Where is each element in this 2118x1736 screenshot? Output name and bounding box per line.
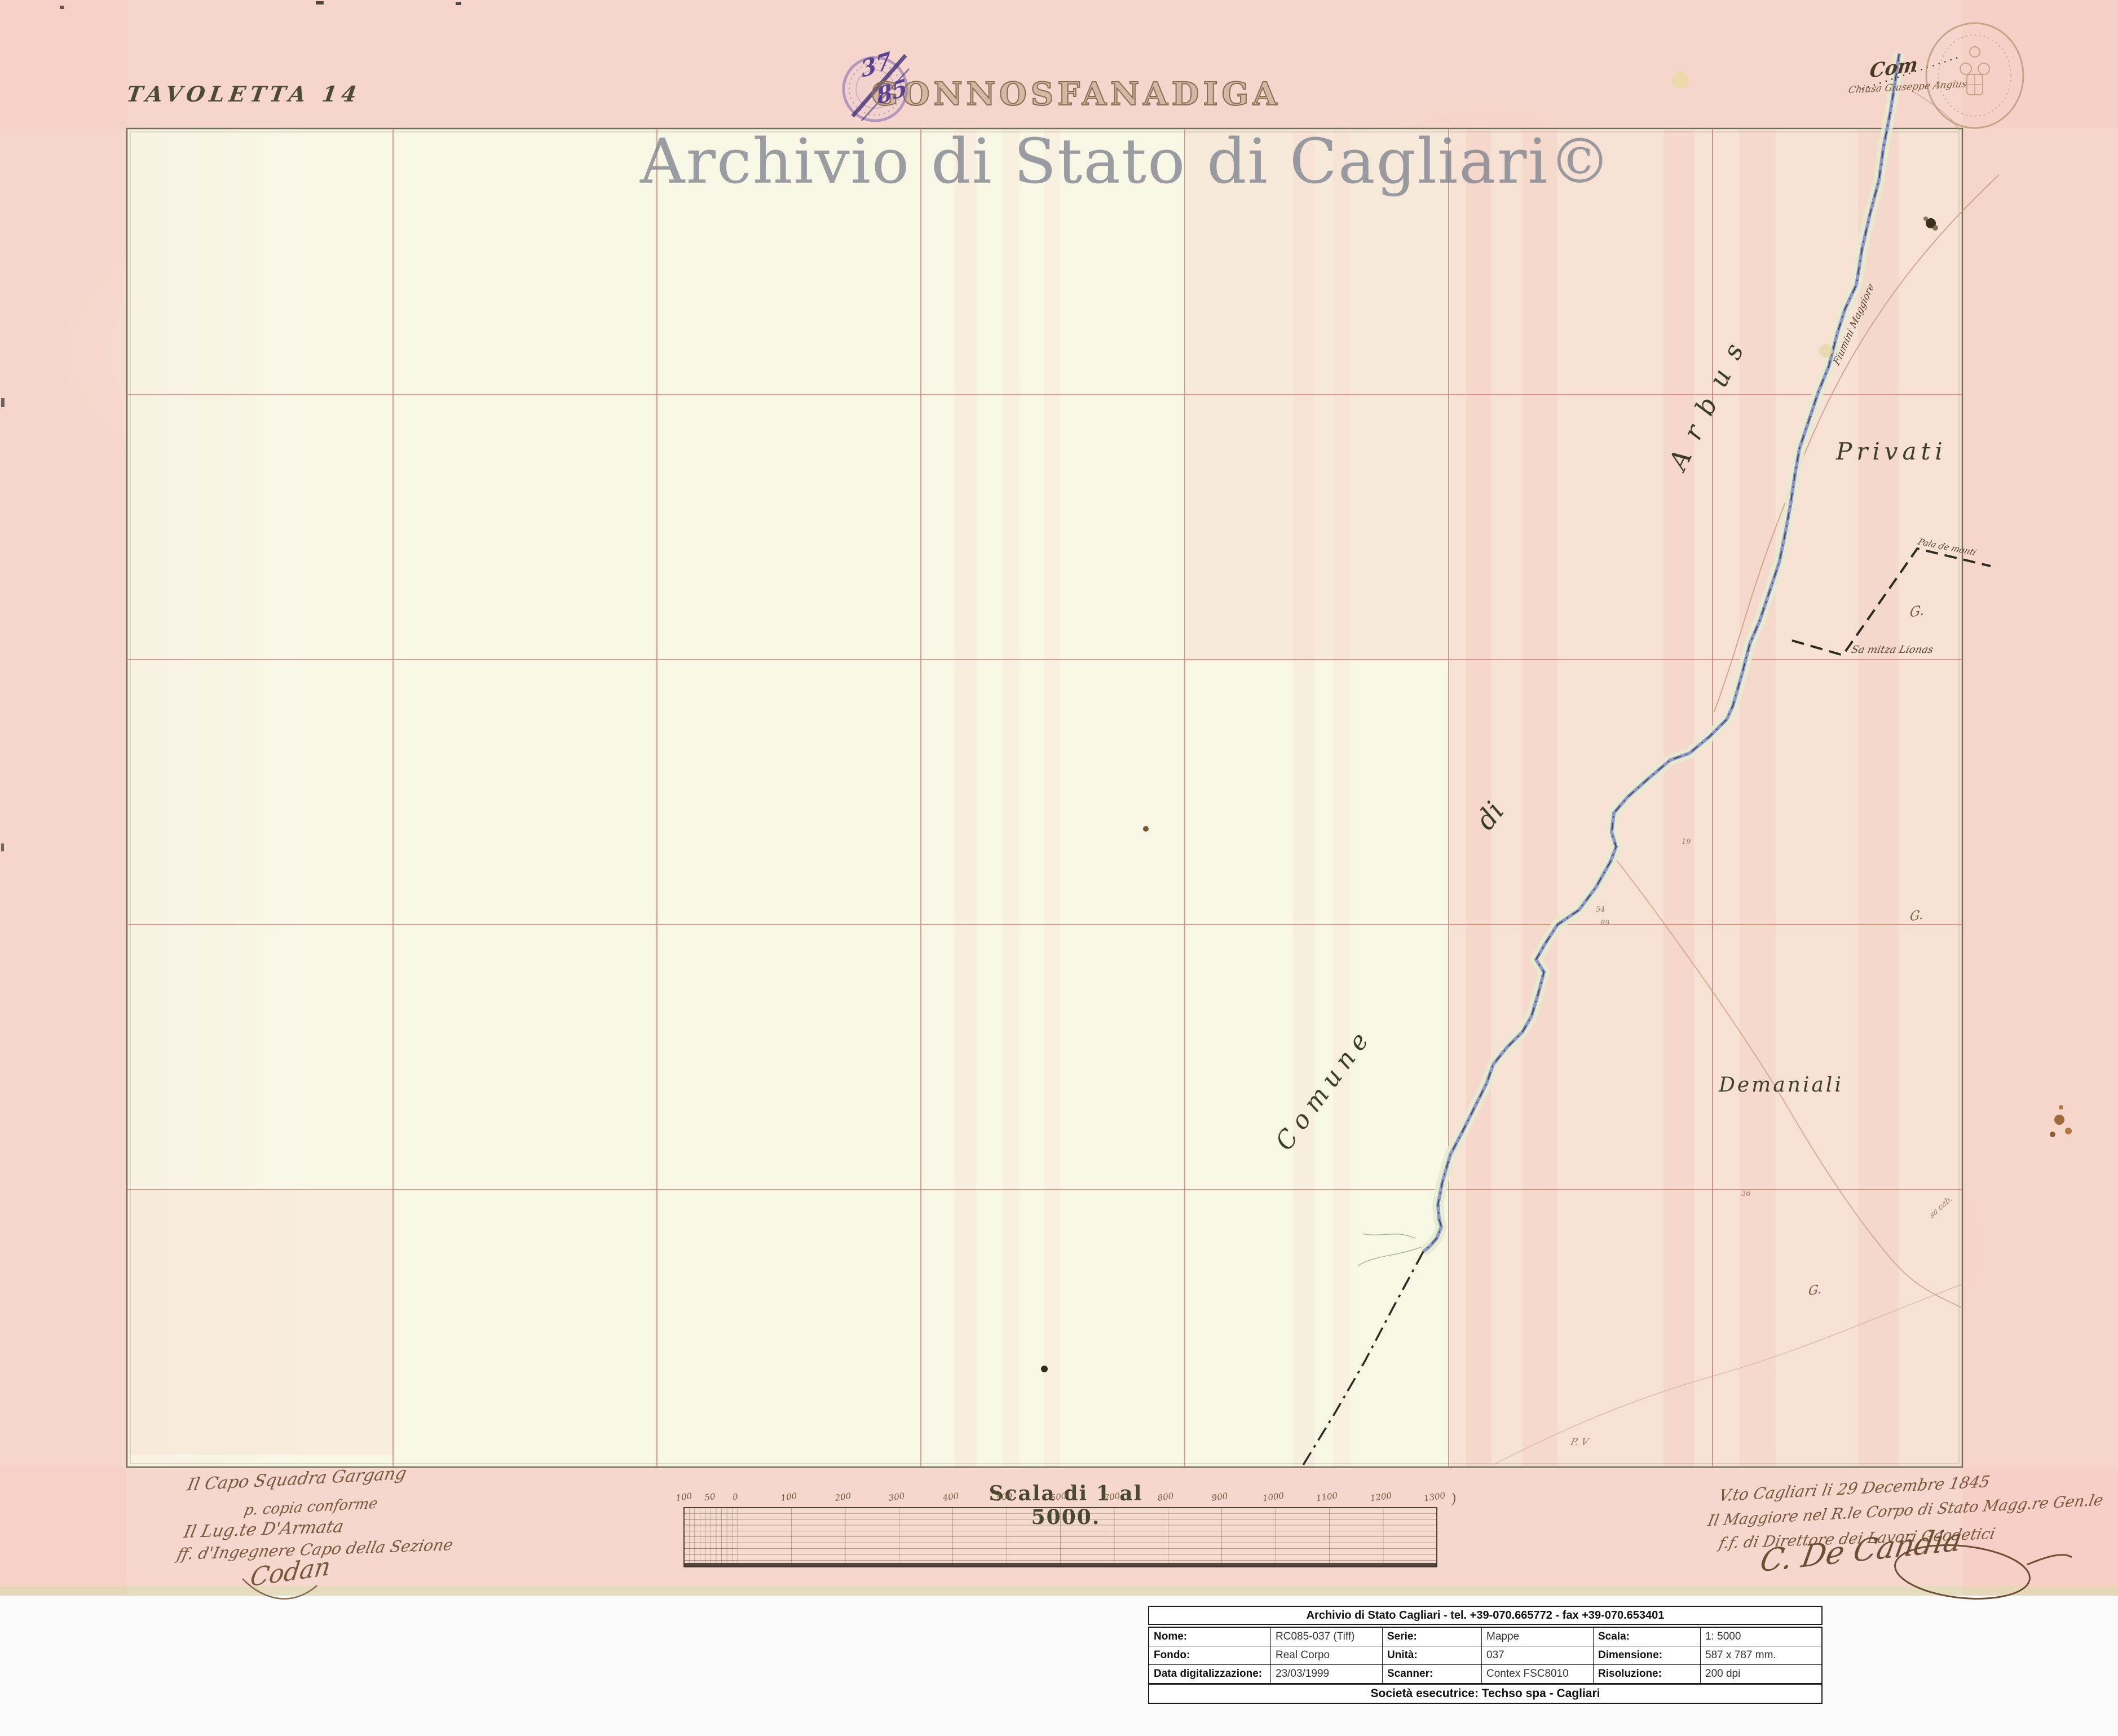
info-label: Scala: <box>1594 1628 1701 1646</box>
info-value: 037 <box>1482 1646 1594 1665</box>
executing-company-footer: Società esecutrice: Techso spa - Cagliar… <box>1149 1684 1821 1703</box>
info-value: 587 x 787 mm. <box>1701 1646 1821 1665</box>
parcel-mark-g: G. <box>1909 602 1925 620</box>
info-value: 1: 5000 <box>1701 1628 1821 1646</box>
info-label: Fondo: <box>1149 1646 1271 1665</box>
info-label: Serie: <box>1383 1628 1482 1646</box>
map-title: GONNOSFANADIGA <box>871 76 1281 113</box>
info-value: Real Corpo <box>1271 1646 1383 1665</box>
label-privati: Privati <box>1836 438 1947 465</box>
info-value: Contex FSC8010 <box>1482 1665 1594 1684</box>
archive-contact-header: Archivio di Stato Cagliari - tel. +39-07… <box>1148 1606 1823 1625</box>
label-samitza: Sa mitza Lionas <box>1850 644 1935 656</box>
archive-watermark: Archivio di Stato di Cagliari© <box>640 125 1612 197</box>
info-grid: Nome: RC085-037 (Tiff) Serie: Mappe Scal… <box>1148 1627 1823 1704</box>
label-demaniali: Demaniali <box>1719 1074 1843 1097</box>
info-label: Nome: <box>1149 1628 1271 1646</box>
info-label: Unità: <box>1383 1646 1482 1665</box>
parcel-number: 54 <box>1596 905 1605 914</box>
scale-title: Scala di 1 al 5000. <box>959 1482 1173 1529</box>
parcel-number: 19 <box>1682 838 1691 846</box>
info-label: Dimensione: <box>1594 1646 1701 1665</box>
digitization-info-table: Archivio di Stato Cagliari - tel. +39-07… <box>1148 1606 1823 1704</box>
sheet-number-title: TAVOLETTA 14 <box>125 81 363 107</box>
map-sheet <box>127 129 1962 1467</box>
info-value: 200 dpi <box>1701 1665 1821 1684</box>
paper-bottom-edge <box>0 1587 2118 1596</box>
info-value: 23/03/1999 <box>1271 1665 1383 1684</box>
info-label: Data digitalizzazione: <box>1149 1665 1271 1684</box>
parcel-mark-g: G. <box>1909 908 1923 925</box>
parcel-mark-g: G. <box>1808 1282 1822 1299</box>
info-label: Risoluzione: <box>1594 1665 1701 1684</box>
label-pv: P. V <box>1569 1437 1590 1448</box>
info-label: Scanner: <box>1383 1665 1482 1684</box>
info-value: Mappe <box>1482 1628 1594 1646</box>
parcel-number: 89 <box>1600 919 1610 927</box>
parcel-number: 36 <box>1741 1190 1751 1198</box>
info-value: RC085-037 (Tiff) <box>1271 1628 1383 1646</box>
